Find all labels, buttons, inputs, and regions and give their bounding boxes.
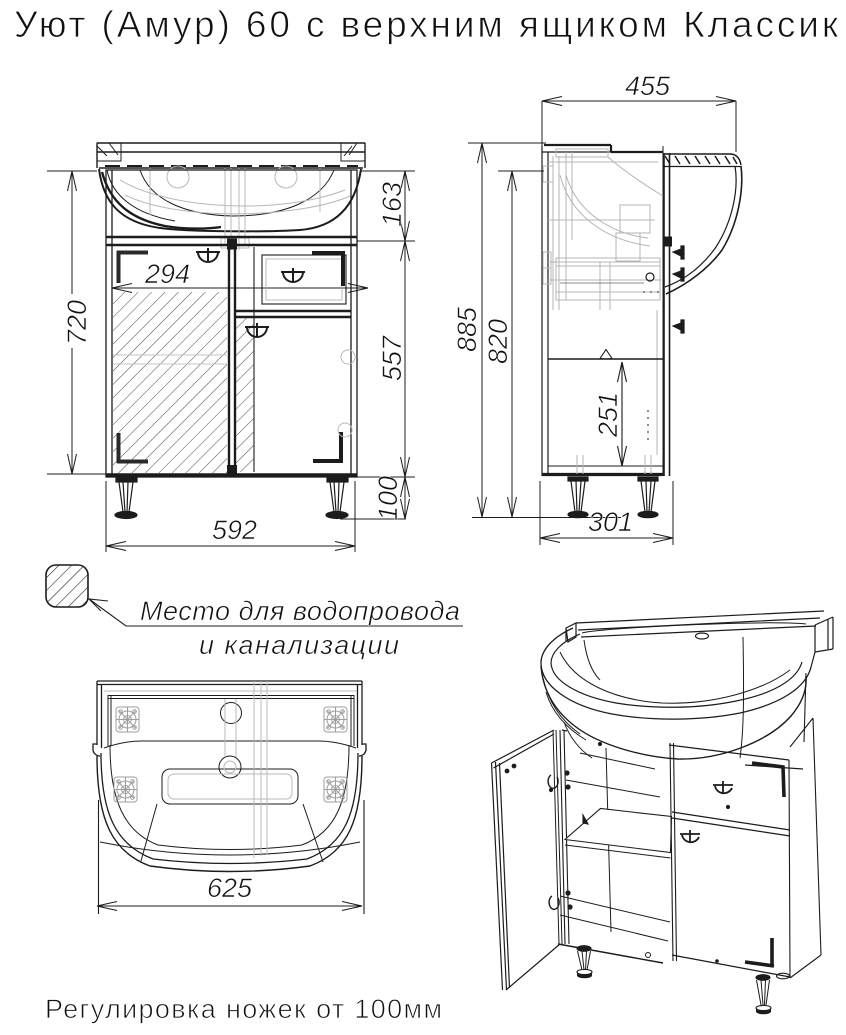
- svg-text:Уют (Амур) 60 с верхним ящиком: Уют (Амур) 60 с верхним ящиком Классик: [14, 4, 839, 45]
- svg-text:720: 720: [62, 300, 92, 345]
- svg-text:100: 100: [373, 476, 403, 521]
- svg-text:301: 301: [588, 507, 633, 537]
- svg-text:557: 557: [377, 335, 407, 381]
- svg-text:294: 294: [144, 259, 190, 289]
- svg-text:625: 625: [207, 873, 253, 903]
- svg-text:251: 251: [593, 392, 623, 438]
- svg-text:592: 592: [212, 515, 257, 545]
- svg-text:455: 455: [625, 71, 671, 101]
- svg-text:885: 885: [452, 306, 482, 352]
- svg-text:Регулировка ножек от 100мм: Регулировка ножек от 100мм: [45, 994, 442, 1024]
- svg-text:163: 163: [377, 182, 407, 227]
- svg-text:Место для водопровода: Место для водопровода: [140, 596, 460, 626]
- svg-text:и канализации: и канализации: [199, 630, 399, 660]
- svg-text:820: 820: [483, 319, 513, 364]
